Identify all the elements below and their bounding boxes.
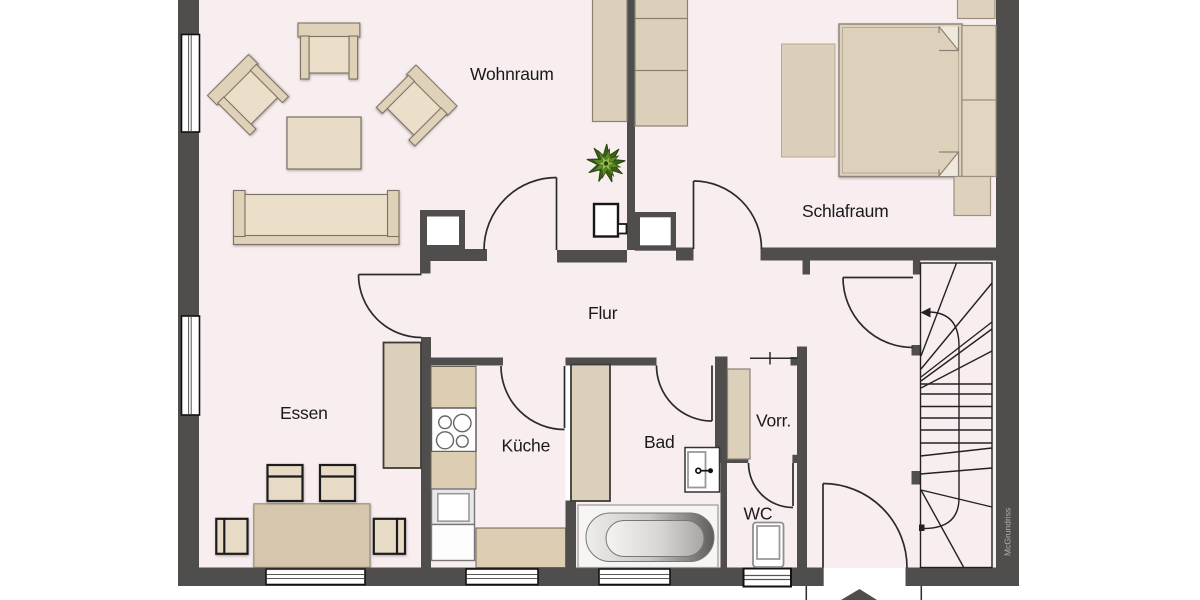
svg-text:Flur: Flur [588, 303, 618, 323]
svg-text:Wohnraum: Wohnraum [470, 64, 554, 84]
svg-text:Essen: Essen [280, 403, 328, 423]
svg-text:WC: WC [744, 504, 773, 524]
svg-text:Schlafraum: Schlafraum [802, 201, 889, 221]
svg-text:Bad: Bad [644, 432, 675, 452]
svg-text:Küche: Küche [502, 436, 551, 456]
svg-text:McGrundriss: McGrundriss [1003, 508, 1013, 556]
svg-text:Vorr.: Vorr. [756, 411, 791, 431]
